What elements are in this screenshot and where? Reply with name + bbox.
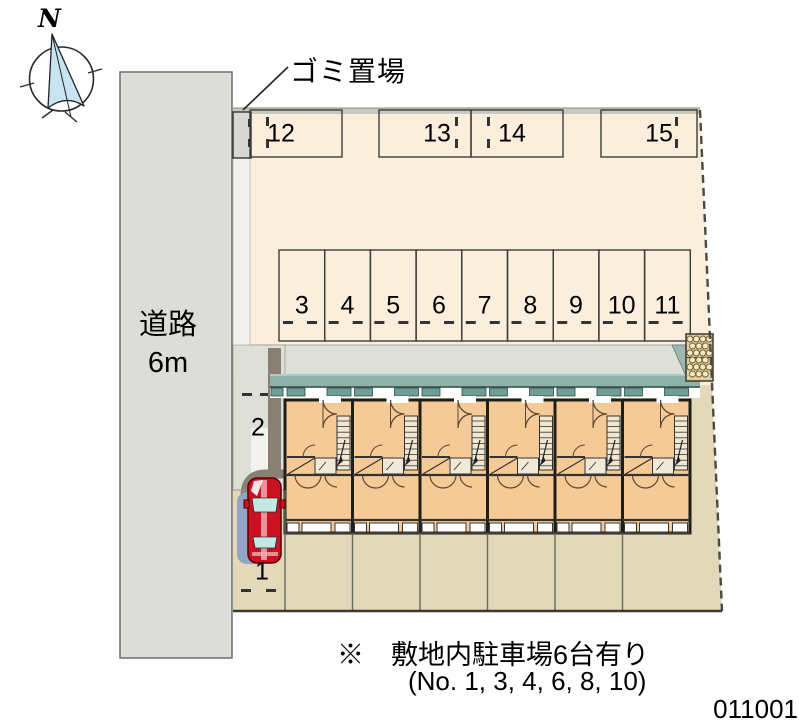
apartment-building [285,396,690,533]
apartment-unit [555,396,623,533]
parking-space-number: 8 [523,292,537,321]
stone-pad-hatch [686,334,713,381]
site-plan-drawing [0,0,800,727]
site-plan: N ゴミ置場 道路 6m 121314153456789101112 ※ 敷地内… [0,0,800,727]
parking-space-number: 5 [386,292,400,321]
apartment-unit [488,396,556,533]
plan-id: 011001 [698,694,798,725]
parking-space-number: 2 [251,414,265,443]
parking-space-number: 3 [295,292,309,321]
road-width: 6m [128,344,208,382]
parking-space-number: 4 [341,292,355,321]
apartment-unit [420,396,488,533]
parking-space-number: 1 [255,558,269,587]
parking-space-number: 11 [654,292,680,321]
parking-space-number: 15 [645,120,673,149]
parking-space-number: 14 [498,120,526,149]
road-label: 道路 6m [128,306,208,382]
parking-space-number: 9 [569,292,583,321]
apartment-unit [623,396,691,533]
apartment-unit [285,396,353,533]
road-name: 道路 [128,306,208,344]
parking-space-number: 12 [267,120,295,149]
parking-space-number: 10 [608,292,636,321]
compass-icon [20,34,102,122]
parking-space-number: 7 [478,292,492,321]
garbage-leader-line [243,67,288,110]
garbage-label: ゴミ置場 [290,50,406,90]
north-label: N [38,4,61,33]
entry-tiles [271,388,689,396]
note-line2: (No. 1, 3, 4, 6, 8, 10) [408,666,646,697]
eave-band [270,374,700,398]
parking-space-number: 13 [423,120,451,149]
parking-space-number: 6 [432,292,446,321]
apartment-unit [353,396,421,533]
